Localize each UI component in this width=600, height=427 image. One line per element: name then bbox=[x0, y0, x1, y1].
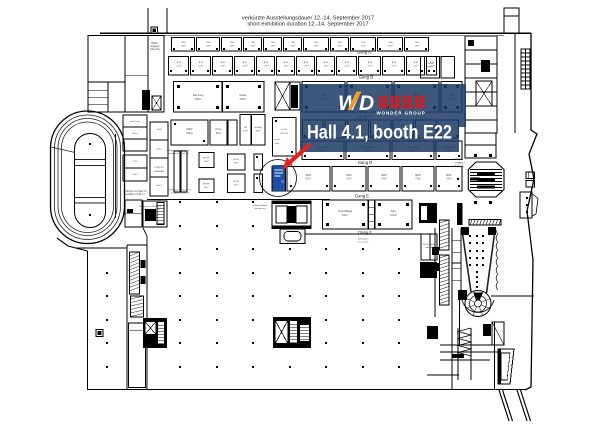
svg-text:WF HK: WF HK bbox=[203, 158, 210, 160]
svg-text:Gang A: Gang A bbox=[357, 50, 371, 55]
svg-text:MWF: MWF bbox=[346, 175, 352, 177]
svg-text:HD: HD bbox=[244, 127, 248, 129]
svg-text:Wdr: Wdr bbox=[251, 41, 255, 44]
svg-text:32m²: 32m² bbox=[206, 44, 211, 47]
svg-text:Rolltreppe aus Halle 4.0: Rolltreppe aus Halle 4.0 bbox=[166, 149, 190, 152]
svg-text:32m²: 32m² bbox=[271, 44, 276, 47]
svg-text:154.2m²: 154.2m² bbox=[280, 132, 288, 135]
svg-text:A.M.: A.M. bbox=[368, 61, 373, 64]
svg-text:Druss: Druss bbox=[216, 128, 223, 131]
svg-text:GENERAL: GENERAL bbox=[154, 170, 165, 173]
svg-text:Wdr: Wdr bbox=[361, 41, 365, 44]
svg-text:32m²: 32m² bbox=[415, 44, 420, 47]
svg-text:GFN: GFN bbox=[157, 129, 162, 131]
svg-text:hall entry: hall entry bbox=[150, 48, 161, 51]
svg-text:A.M.: A.M. bbox=[324, 61, 329, 64]
svg-text:D: D bbox=[359, 92, 374, 115]
svg-text:MWF: MWF bbox=[306, 175, 312, 177]
svg-text:Wdr: Wdr bbox=[291, 41, 295, 44]
svg-text:275m²: 275m² bbox=[239, 98, 246, 101]
svg-text:short exhibition duration 12.-: short exhibition duration 12.-14. Septem… bbox=[247, 22, 368, 28]
svg-text:28m²: 28m² bbox=[204, 160, 209, 163]
svg-text:Wdr: Wdr bbox=[388, 41, 392, 44]
svg-text:90m²: 90m² bbox=[428, 66, 433, 69]
svg-text:Gang E: Gang E bbox=[355, 193, 369, 198]
svg-text:Wdr: Wdr bbox=[206, 41, 210, 44]
svg-text:57m²: 57m² bbox=[415, 178, 420, 181]
svg-text:1000 Technical: 1000 Technical bbox=[423, 244, 436, 246]
svg-text:A.M.: A.M. bbox=[264, 61, 269, 64]
svg-text:A.M.: A.M. bbox=[243, 61, 248, 64]
svg-text:escalator from hall 4.0: escalator from hall 4.0 bbox=[167, 152, 189, 155]
svg-text:storage use: storage use bbox=[254, 207, 266, 210]
svg-text:WF HK: WF HK bbox=[203, 184, 210, 186]
svg-text:Wdr: Wdr bbox=[338, 41, 342, 44]
svg-text:32m²: 32m² bbox=[338, 44, 343, 47]
svg-text:163m²: 163m² bbox=[186, 132, 193, 135]
svg-text:A.M.: A.M. bbox=[177, 61, 182, 64]
svg-text:104m²: 104m² bbox=[390, 214, 397, 217]
svg-text:57m²: 57m² bbox=[381, 178, 386, 181]
svg-text:A.M.: A.M. bbox=[304, 61, 309, 64]
svg-text:Nbg: Nbg bbox=[275, 143, 279, 145]
svg-text:MWF: MWF bbox=[446, 175, 452, 177]
svg-text:Anl.Trans: Anl.Trans bbox=[130, 120, 140, 123]
svg-text:60m²: 60m² bbox=[157, 184, 162, 187]
svg-text:41m²: 41m² bbox=[284, 65, 289, 68]
svg-text:escalator to hall 4.0: escalator to hall 4.0 bbox=[125, 193, 146, 196]
svg-text:escalator to hall 4.0: escalator to hall 4.0 bbox=[171, 192, 191, 195]
svg-text:1000 kg/m²: 1000 kg/m² bbox=[358, 238, 369, 241]
svg-text:FF HK: FF HK bbox=[233, 181, 240, 183]
svg-text:41m²: 41m² bbox=[221, 65, 226, 68]
svg-text:A.M.: A.M. bbox=[221, 61, 226, 64]
svg-text:41m²: 41m² bbox=[414, 65, 419, 68]
svg-text:57m²: 57m² bbox=[446, 178, 451, 181]
svg-text:95m²: 95m² bbox=[216, 132, 221, 135]
svg-text:41m²: 41m² bbox=[392, 65, 397, 68]
svg-text:41m²: 41m² bbox=[243, 65, 248, 68]
svg-text:43m²: 43m² bbox=[243, 130, 248, 133]
svg-text:84m²: 84m² bbox=[342, 214, 348, 217]
svg-text:46m²: 46m² bbox=[234, 162, 239, 165]
svg-text:Nestle: Nestle bbox=[239, 94, 247, 97]
svg-text:MWF: MWF bbox=[415, 175, 421, 177]
svg-text:Wdr: Wdr bbox=[314, 41, 318, 44]
svg-text:A.M.: A.M. bbox=[284, 61, 289, 64]
svg-text:36m²: 36m² bbox=[204, 186, 209, 189]
svg-text:Wdr: Wdr bbox=[181, 41, 185, 44]
svg-text:263m²: 263m² bbox=[194, 98, 201, 101]
svg-text:hall entry: hall entry bbox=[455, 165, 465, 168]
svg-text:Sondbg: Sondbg bbox=[254, 127, 262, 129]
svg-text:62m²: 62m² bbox=[133, 173, 138, 176]
svg-text:CPU: CPU bbox=[133, 161, 138, 163]
svg-text:Empty Hallway: Empty Hallway bbox=[253, 204, 268, 207]
svg-text:36m²: 36m² bbox=[256, 130, 261, 133]
svg-text:41m²: 41m² bbox=[304, 65, 309, 68]
svg-text:FF HK: FF HK bbox=[233, 159, 240, 161]
svg-text:41m²: 41m² bbox=[345, 65, 350, 68]
svg-text:Wdr: Wdr bbox=[415, 41, 419, 44]
svg-text:Ferrara: Ferrara bbox=[274, 139, 281, 141]
svg-text:Gang D: Gang D bbox=[358, 160, 372, 165]
svg-text:eingang /: eingang / bbox=[455, 163, 465, 165]
svg-text:A.M.: A.M. bbox=[345, 61, 350, 64]
svg-text:Wdr: Wdr bbox=[230, 41, 234, 44]
svg-text:41m²: 41m² bbox=[264, 65, 269, 68]
svg-text:32m²: 32m² bbox=[291, 44, 296, 47]
svg-text:32m²: 32m² bbox=[230, 44, 235, 47]
svg-text:32m²: 32m² bbox=[251, 44, 256, 47]
svg-text:not on plan: not on plan bbox=[358, 241, 370, 244]
svg-text:Rolltreppe zu Halle 4.0: Rolltreppe zu Halle 4.0 bbox=[123, 190, 147, 193]
svg-text:41m²: 41m² bbox=[177, 65, 182, 68]
svg-text:Samsung: Samsung bbox=[193, 94, 204, 97]
svg-text:56m²: 56m² bbox=[234, 184, 239, 187]
svg-text:Rolltreppe zu Halle 4.0: Rolltreppe zu Halle 4.0 bbox=[169, 189, 192, 192]
svg-text:Hall 4.1, booth E22: Hall 4.1, booth E22 bbox=[307, 123, 452, 144]
svg-text:Büro: Büro bbox=[133, 132, 138, 135]
svg-text:32m²: 32m² bbox=[361, 44, 366, 47]
svg-text:41m²: 41m² bbox=[368, 65, 373, 68]
svg-text:Fostrot/Mega: Fostrot/Mega bbox=[338, 210, 353, 213]
svg-text:Ly-Ch: Ly-Ch bbox=[281, 129, 288, 131]
svg-text:Rollen-: Rollen- bbox=[455, 159, 463, 161]
svg-text:32m²: 32m² bbox=[314, 44, 319, 47]
svg-text:41m²: 41m² bbox=[199, 65, 204, 68]
svg-text:MWF: MWF bbox=[381, 175, 387, 177]
svg-text:Gang B: Gang B bbox=[359, 75, 373, 80]
svg-text:A.M.: A.M. bbox=[392, 61, 397, 64]
svg-text:Faby: Faby bbox=[391, 210, 397, 213]
svg-text:A.M.: A.M. bbox=[414, 61, 419, 64]
svg-text:32m²: 32m² bbox=[388, 44, 393, 47]
svg-text:Wdr: Wdr bbox=[271, 41, 275, 44]
svg-text:32m²: 32m² bbox=[181, 44, 186, 47]
svg-text:57m²: 57m² bbox=[346, 178, 351, 181]
svg-text:PORTOU: PORTOU bbox=[154, 167, 164, 169]
svg-text:WONDER GROUP: WONDER GROUP bbox=[376, 111, 425, 116]
svg-text:Tretone: Tretone bbox=[426, 62, 434, 65]
svg-text:adaption: adaption bbox=[425, 246, 432, 249]
svg-text:KENZ: KENZ bbox=[186, 129, 193, 131]
svg-text:57m²: 57m² bbox=[306, 178, 311, 181]
svg-text:41m²: 41m² bbox=[324, 65, 329, 68]
svg-text:A.M.: A.M. bbox=[199, 61, 204, 64]
svg-text:DPU: DPU bbox=[157, 149, 162, 151]
